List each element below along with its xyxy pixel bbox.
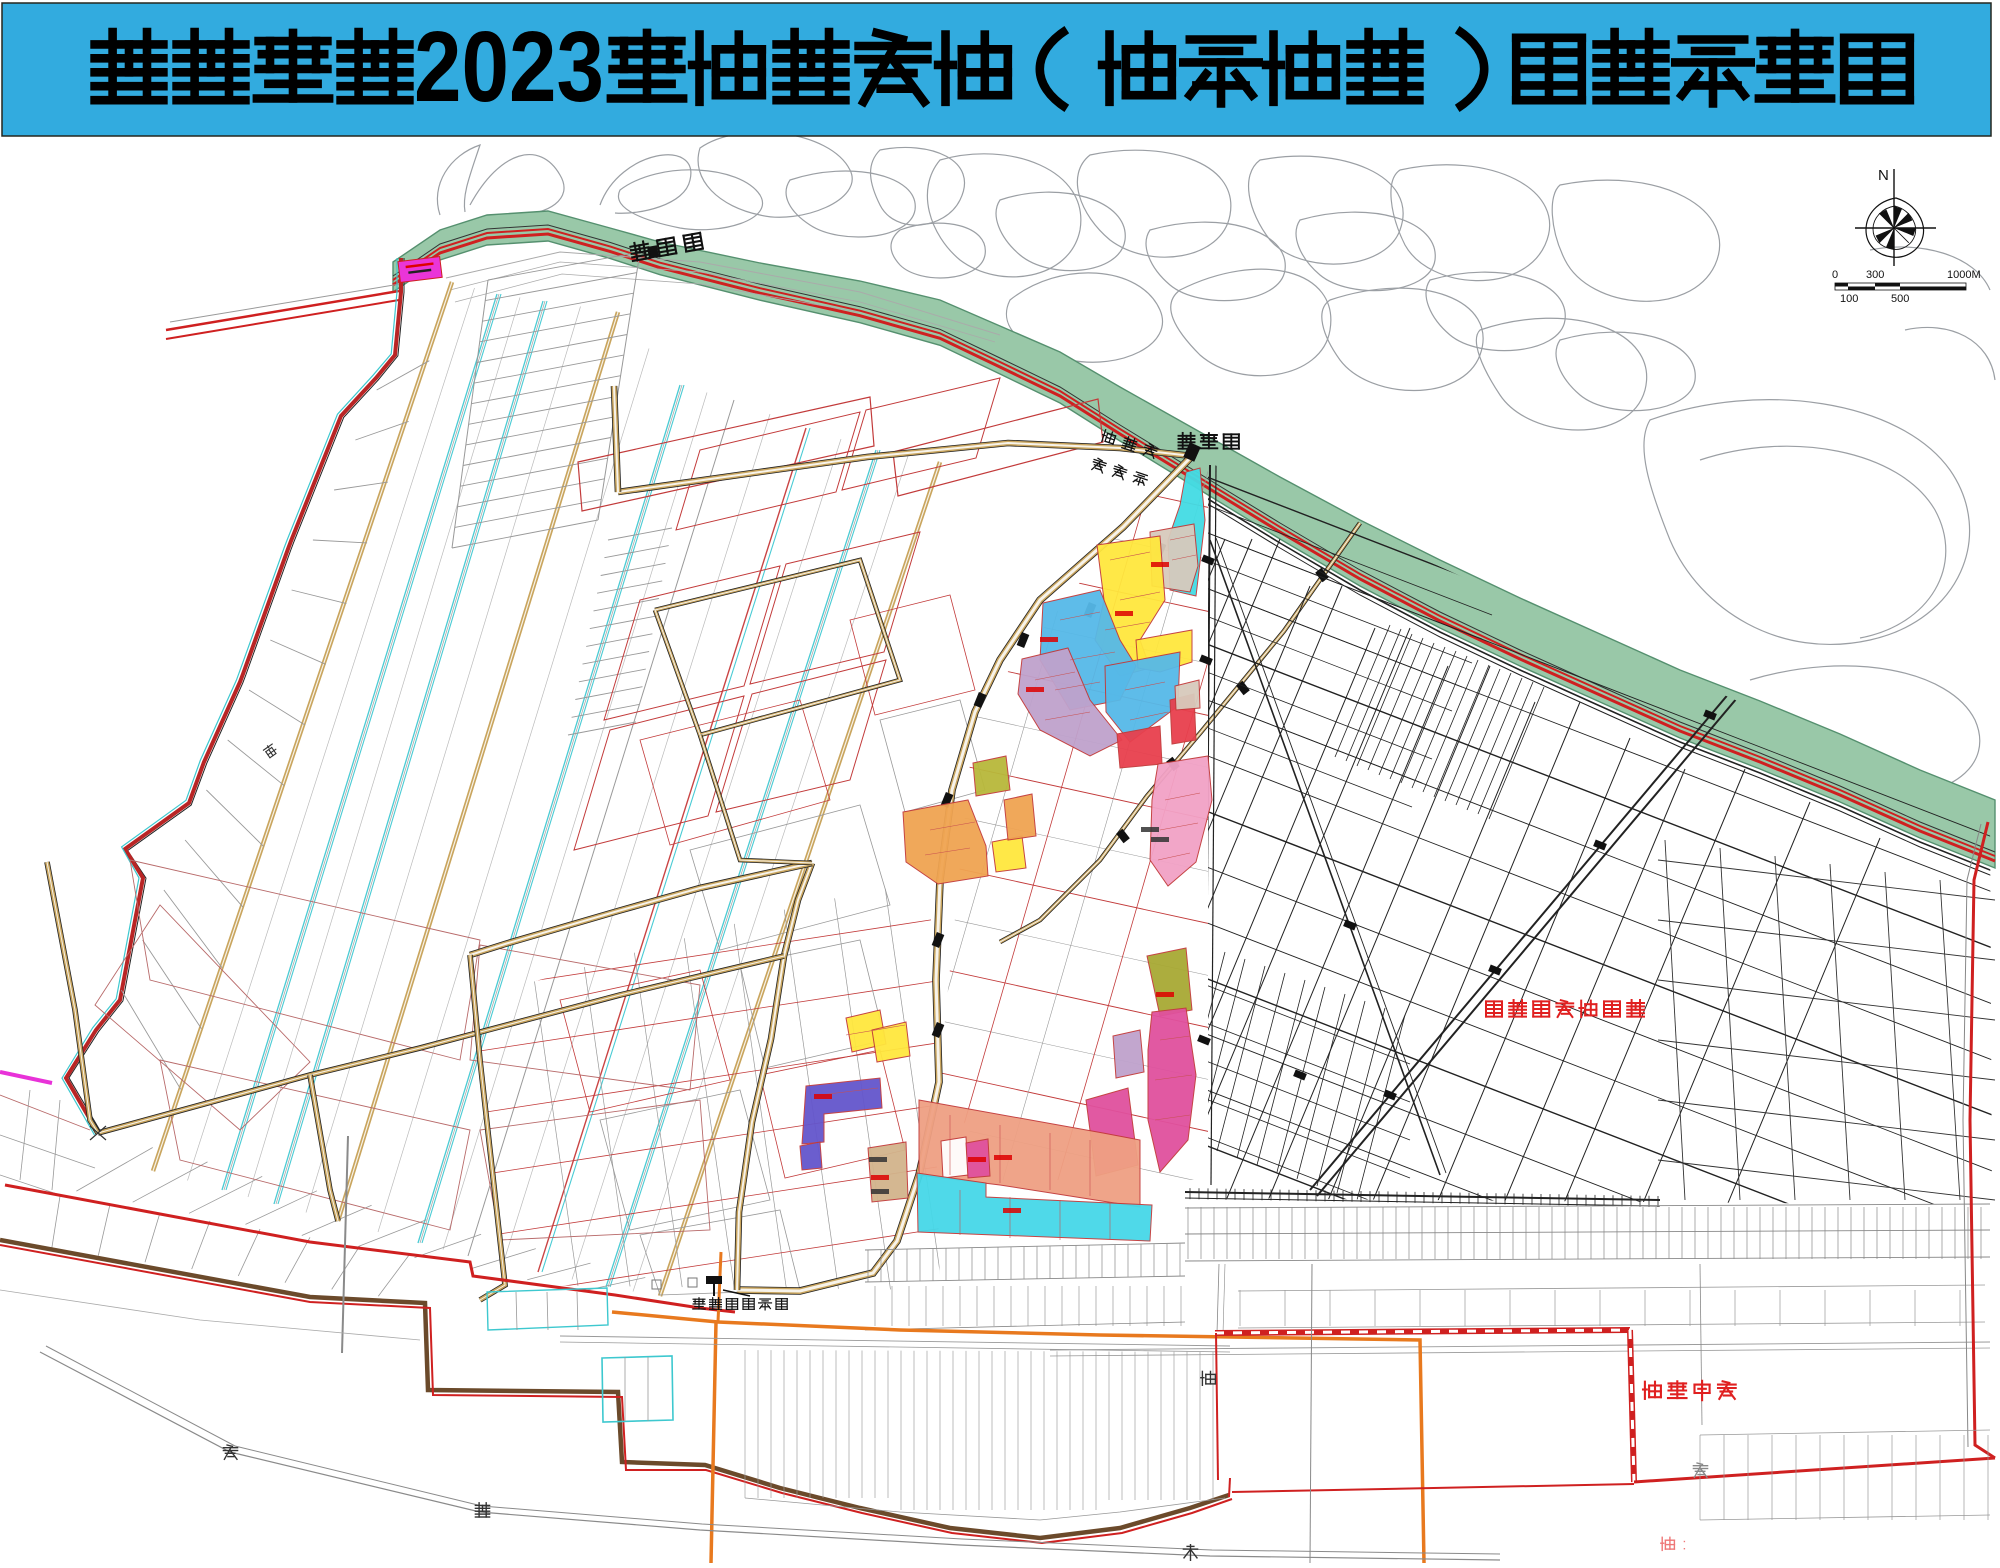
svg-text:2023: 2023 [414,11,604,123]
svg-text:100: 100 [1840,293,1858,305]
svg-text:500: 500 [1891,293,1909,305]
svg-text:1000M: 1000M [1947,269,1981,281]
svg-text:N: N [1878,167,1889,184]
svg-text:300: 300 [1866,269,1884,281]
svg-text:0: 0 [1832,269,1838,281]
